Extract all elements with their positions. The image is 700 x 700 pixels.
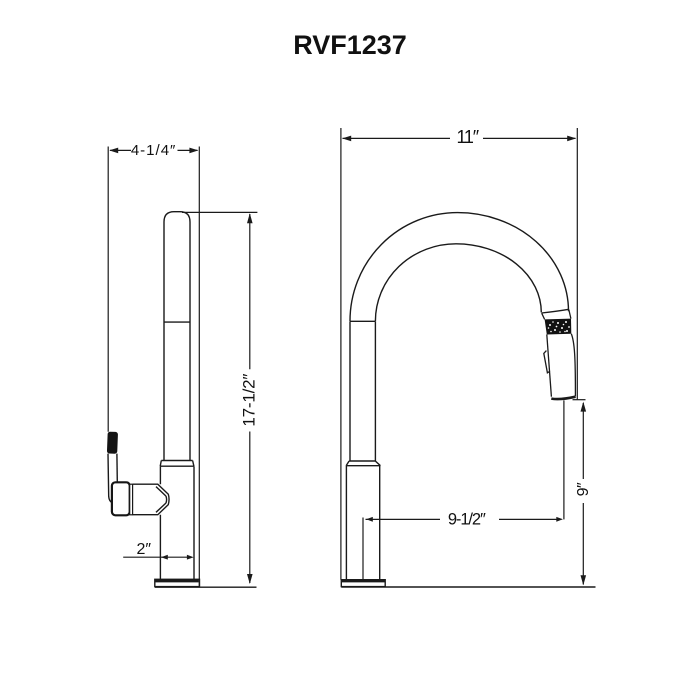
svg-text:11″: 11″: [456, 127, 479, 147]
svg-text:2″: 2″: [137, 541, 152, 558]
svg-text:9″: 9″: [575, 482, 592, 496]
svg-text:RVF1237: RVF1237: [293, 30, 407, 60]
svg-text:17-1/2″: 17-1/2″: [240, 374, 259, 427]
svg-text:9-1/2″: 9-1/2″: [448, 511, 486, 529]
svg-text:4-1/4″: 4-1/4″: [131, 142, 177, 159]
